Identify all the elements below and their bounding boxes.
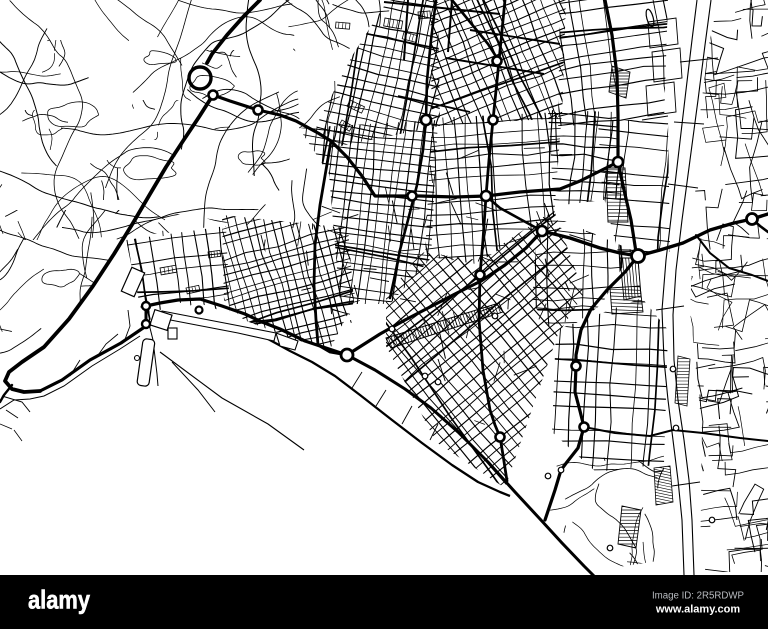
svg-text:www.alamy.com: www.alamy.com [655,604,741,616]
svg-text:alamy: alamy [28,585,90,615]
svg-text:Image ID: 2R5RDWP: Image ID: 2R5RDWP [652,591,744,602]
